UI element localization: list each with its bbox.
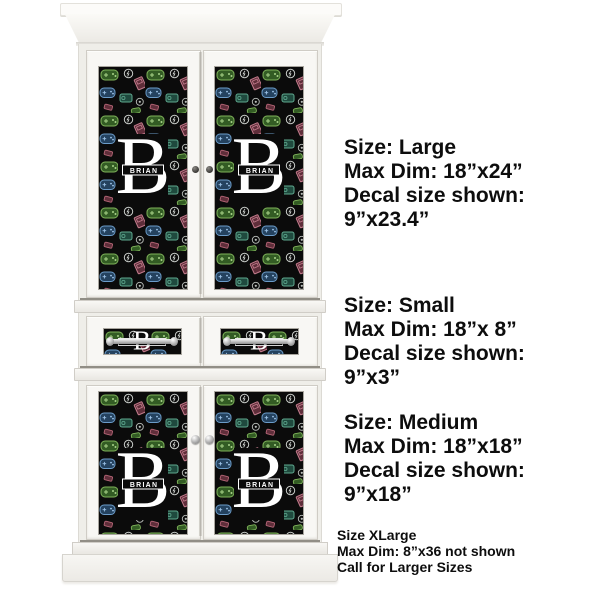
max-dim: Max Dim: 18”x24” xyxy=(344,160,525,184)
divider-molding xyxy=(74,300,326,313)
decal-size-label: Decal size shown: xyxy=(344,184,525,208)
decal-size-value: 9”x18” xyxy=(344,483,525,507)
size-info-small: Size: Small Max Dim: 18”x 8” Decal size … xyxy=(344,294,525,390)
max-dim: Max Dim: 18”x18” xyxy=(344,435,525,459)
door-knob xyxy=(192,166,199,173)
lower-door-seam xyxy=(199,387,202,536)
size-info-large: Size: Large Max Dim: 18”x24” Decal size … xyxy=(344,136,525,232)
max-dim: Max Dim: 8”x36 not shown xyxy=(337,543,515,559)
monogram-name-band: BRIAN xyxy=(122,165,164,176)
size-label: Size XLarge xyxy=(337,527,515,543)
decal-size-label: Decal size shown: xyxy=(344,459,525,483)
divider-molding xyxy=(74,368,326,381)
monogram-decal: B BRIAN xyxy=(118,134,168,206)
monogram-name-band: BRIAN xyxy=(238,165,280,176)
door-knob xyxy=(205,435,214,444)
monogram-decal: B BRIAN xyxy=(234,448,284,520)
monogram-name: BRIAN xyxy=(128,166,158,174)
upper-door-seam xyxy=(199,52,202,294)
monogram-decal: B BRIAN xyxy=(118,448,168,520)
monogram-decal: B BRIAN xyxy=(234,134,284,206)
monogram-name: BRIAN xyxy=(128,480,158,488)
cabinet-plinth xyxy=(62,554,338,582)
size-label: Size: Large xyxy=(344,136,525,160)
max-dim: Max Dim: 18”x 8” xyxy=(344,318,525,342)
size-info-medium: Size: Medium Max Dim: 18”x18” Decal size… xyxy=(344,411,525,507)
product-mockup-image: B BRIAN B BRIAN B B xyxy=(0,0,600,600)
decal-size-value: 9”x23.4” xyxy=(344,208,525,232)
monogram-name-band: BRIAN xyxy=(122,479,164,490)
call-note: Call for Larger Sizes xyxy=(337,559,515,575)
monogram-name: BRIAN xyxy=(244,480,274,488)
decal-size-label: Decal size shown: xyxy=(344,342,525,366)
drawer-seam xyxy=(199,318,202,363)
door-knob xyxy=(191,435,200,444)
door-knob xyxy=(206,166,213,173)
monogram-name: BRIAN xyxy=(244,166,274,174)
monogram-name-band: BRIAN xyxy=(238,479,280,490)
cabinet-crown-molding xyxy=(62,14,338,42)
drawer-handle xyxy=(227,339,291,344)
size-info-xlarge: Size XLarge Max Dim: 8”x36 not shown Cal… xyxy=(337,527,515,575)
size-label: Size: Medium xyxy=(344,411,525,435)
size-label: Size: Small xyxy=(344,294,525,318)
decal-size-value: 9”x3” xyxy=(344,366,525,390)
drawer-handle xyxy=(110,339,174,344)
